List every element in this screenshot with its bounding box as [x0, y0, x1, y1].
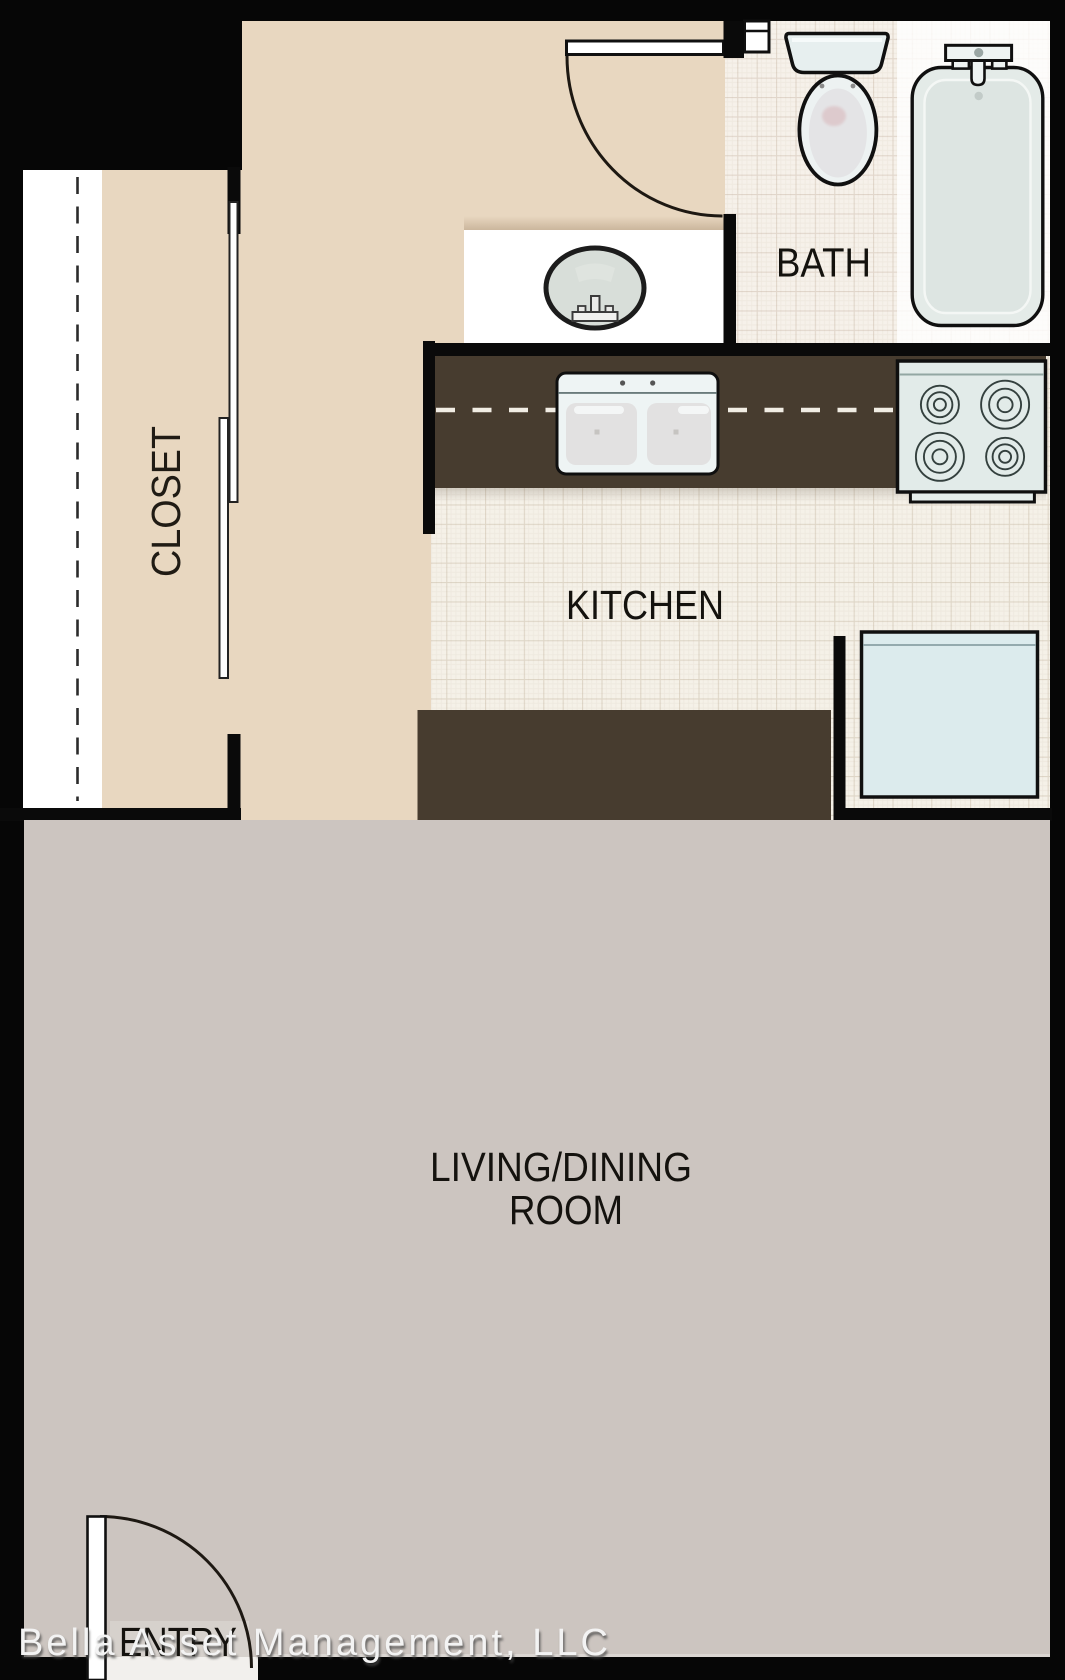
svg-text:KITCHEN: KITCHEN [566, 582, 724, 628]
svg-text:Bella Asset Management, LLC: Bella Asset Management, LLC [18, 1622, 608, 1664]
svg-text:BATH: BATH [776, 240, 871, 286]
svg-text:CLOSET: CLOSET [143, 426, 189, 577]
svg-text:ROOM: ROOM [509, 1187, 623, 1233]
svg-text:LIVING/DINING: LIVING/DINING [430, 1144, 692, 1190]
